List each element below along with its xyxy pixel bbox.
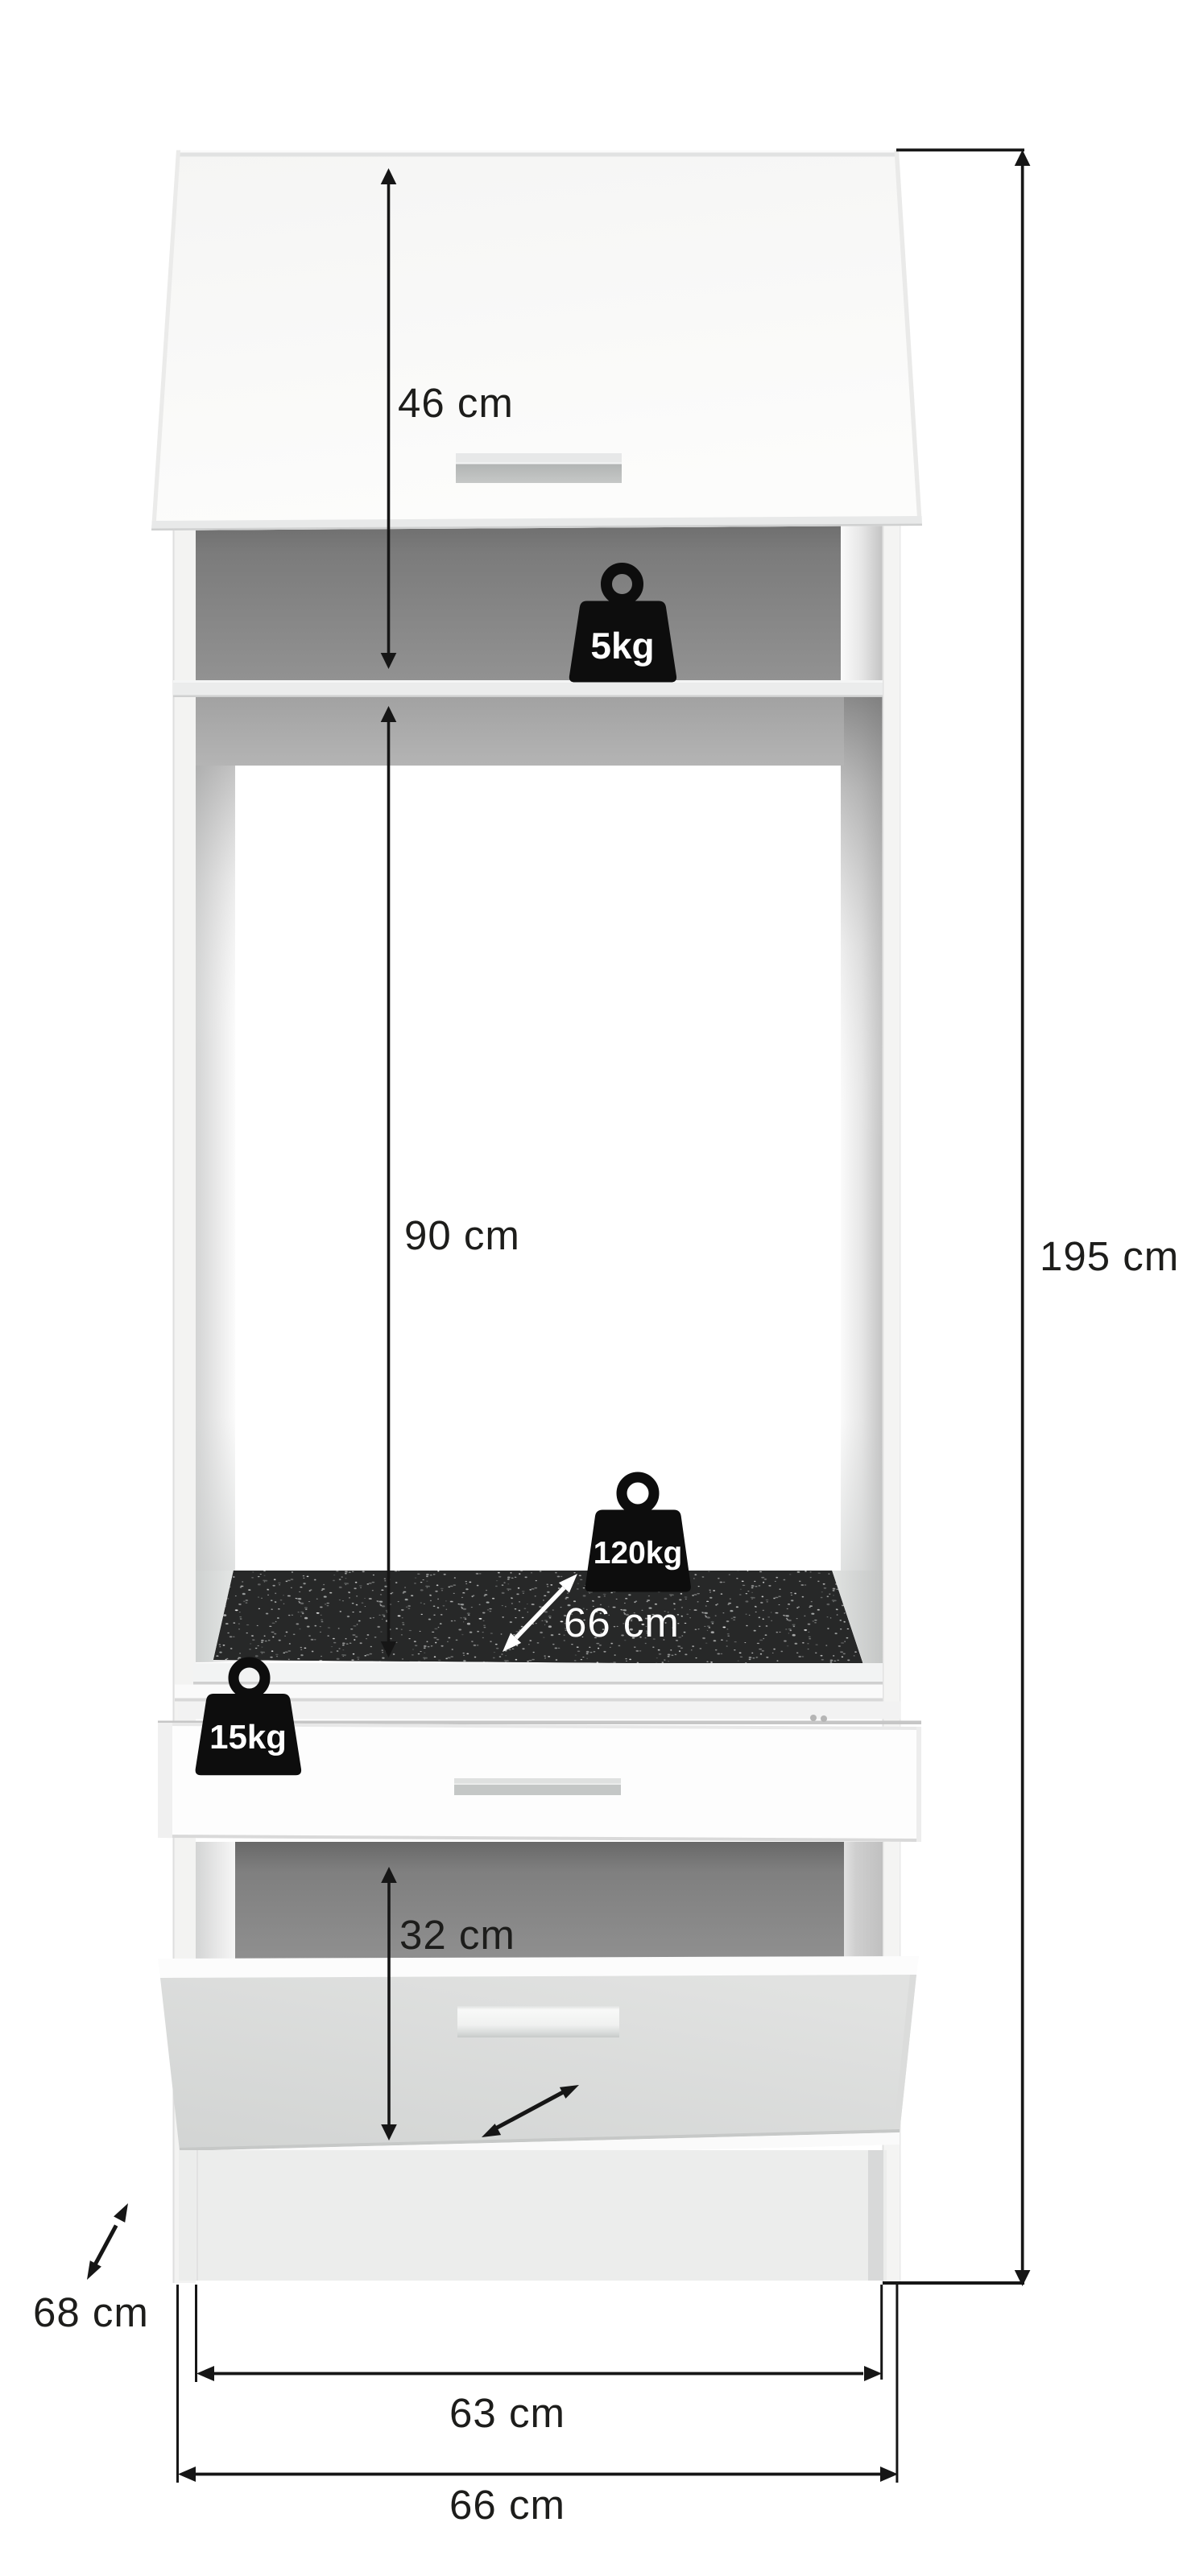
svg-text:15kg: 15kg bbox=[209, 1718, 287, 1756]
svg-text:66 cm: 66 cm bbox=[564, 1600, 680, 1645]
svg-text:32 cm: 32 cm bbox=[399, 1912, 515, 1958]
svg-text:195 cm: 195 cm bbox=[1040, 1233, 1179, 1279]
svg-text:63 cm: 63 cm bbox=[449, 2390, 565, 2436]
svg-text:68 cm: 68 cm bbox=[33, 2289, 149, 2335]
svg-text:5kg: 5kg bbox=[590, 625, 654, 667]
svg-text:46 cm: 46 cm bbox=[398, 380, 514, 426]
svg-text:90 cm: 90 cm bbox=[404, 1212, 520, 1258]
svg-text:120kg: 120kg bbox=[594, 1536, 683, 1571]
svg-text:66 cm: 66 cm bbox=[449, 2482, 565, 2528]
